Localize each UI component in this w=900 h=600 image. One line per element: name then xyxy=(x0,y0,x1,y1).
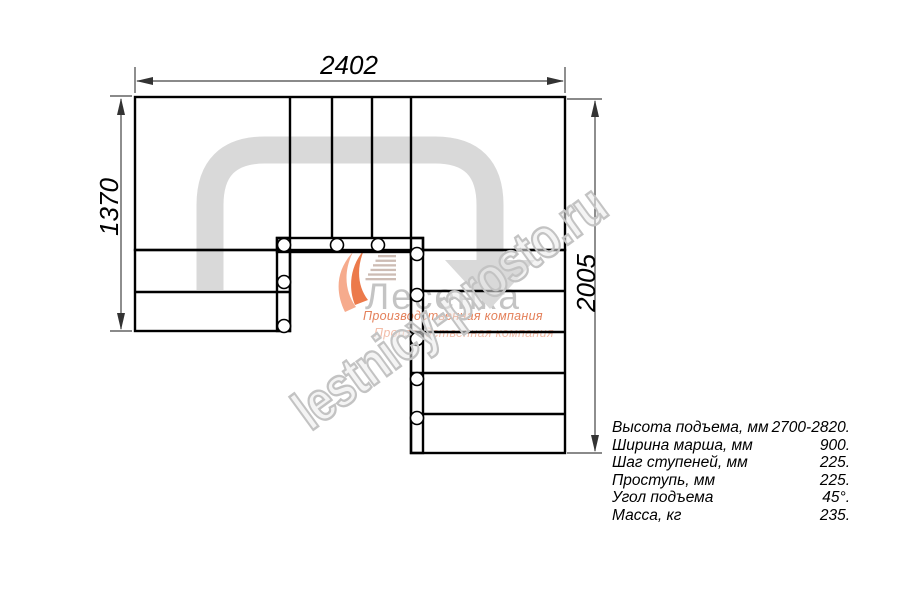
spec-table: Высота подъема, мм 2700-2820. Ширина мар… xyxy=(612,419,850,524)
spec-label: Проступь, мм xyxy=(612,472,715,490)
spec-label: Масса, кг xyxy=(612,507,681,525)
dimension-value-right: 2005 xyxy=(571,203,597,363)
dimension-value-left: 1370 xyxy=(94,127,120,287)
spec-row: Высота подъема, мм 2700-2820. xyxy=(612,419,850,437)
spec-label: Угол подъема xyxy=(612,489,713,507)
spec-value: 235. xyxy=(820,507,850,525)
spec-row: Проступь, мм 225. xyxy=(612,472,850,490)
spec-row: Ширина марша, мм 900. xyxy=(612,437,850,455)
spec-row: Угол подъема 45°. xyxy=(612,489,850,507)
spec-row: Шаг ступеней, мм 225. xyxy=(612,454,850,472)
spec-row: Масса, кг 235. xyxy=(612,507,850,525)
spec-value: 225. xyxy=(820,454,850,472)
staircase-drawing-page: Лесенка Производственная компания Произв… xyxy=(0,0,900,600)
spec-value: 45°. xyxy=(822,489,850,507)
dimension-value-top: 2402 xyxy=(269,50,429,76)
spec-value: 900. xyxy=(820,437,850,455)
spec-label: Шаг ступеней, мм xyxy=(612,454,748,472)
spec-label: Высота подъема, мм xyxy=(612,419,769,437)
spec-value: 2700-2820. xyxy=(772,419,850,437)
fastener-holes xyxy=(278,239,424,425)
spec-value: 225. xyxy=(820,472,850,490)
spec-label: Ширина марша, мм xyxy=(612,437,753,455)
